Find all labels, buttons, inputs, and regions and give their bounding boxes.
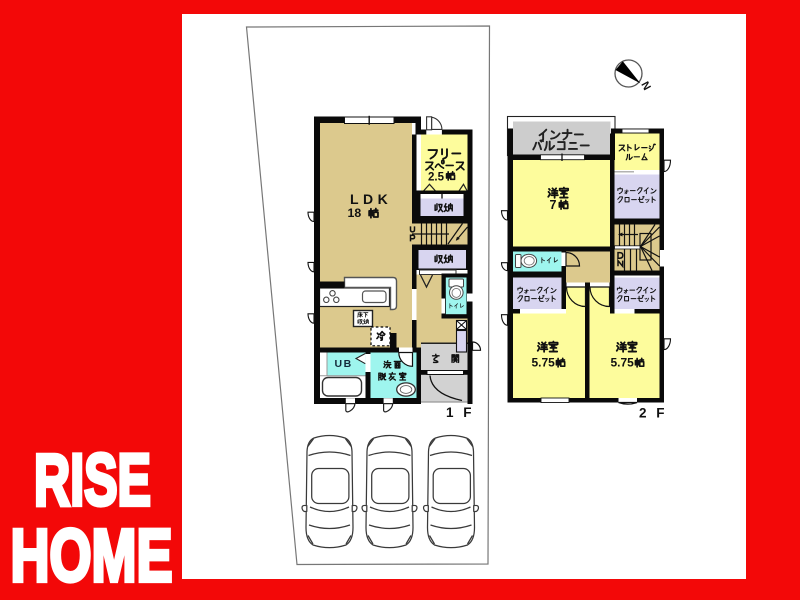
svg-text:7: 7 <box>550 198 557 212</box>
svg-text:LDK: LDK <box>350 191 392 207</box>
svg-text:1 F: 1 F <box>446 405 475 420</box>
svg-text:5.75: 5.75 <box>532 355 556 369</box>
svg-text:2 F: 2 F <box>639 406 668 421</box>
svg-text:RISE: RISE <box>34 440 151 521</box>
svg-text:2.5: 2.5 <box>428 171 445 183</box>
svg-text:HOME: HOME <box>11 514 173 597</box>
svg-text:18: 18 <box>348 206 362 220</box>
svg-text:5.75: 5.75 <box>611 355 635 369</box>
svg-text:UB: UB <box>335 358 353 370</box>
